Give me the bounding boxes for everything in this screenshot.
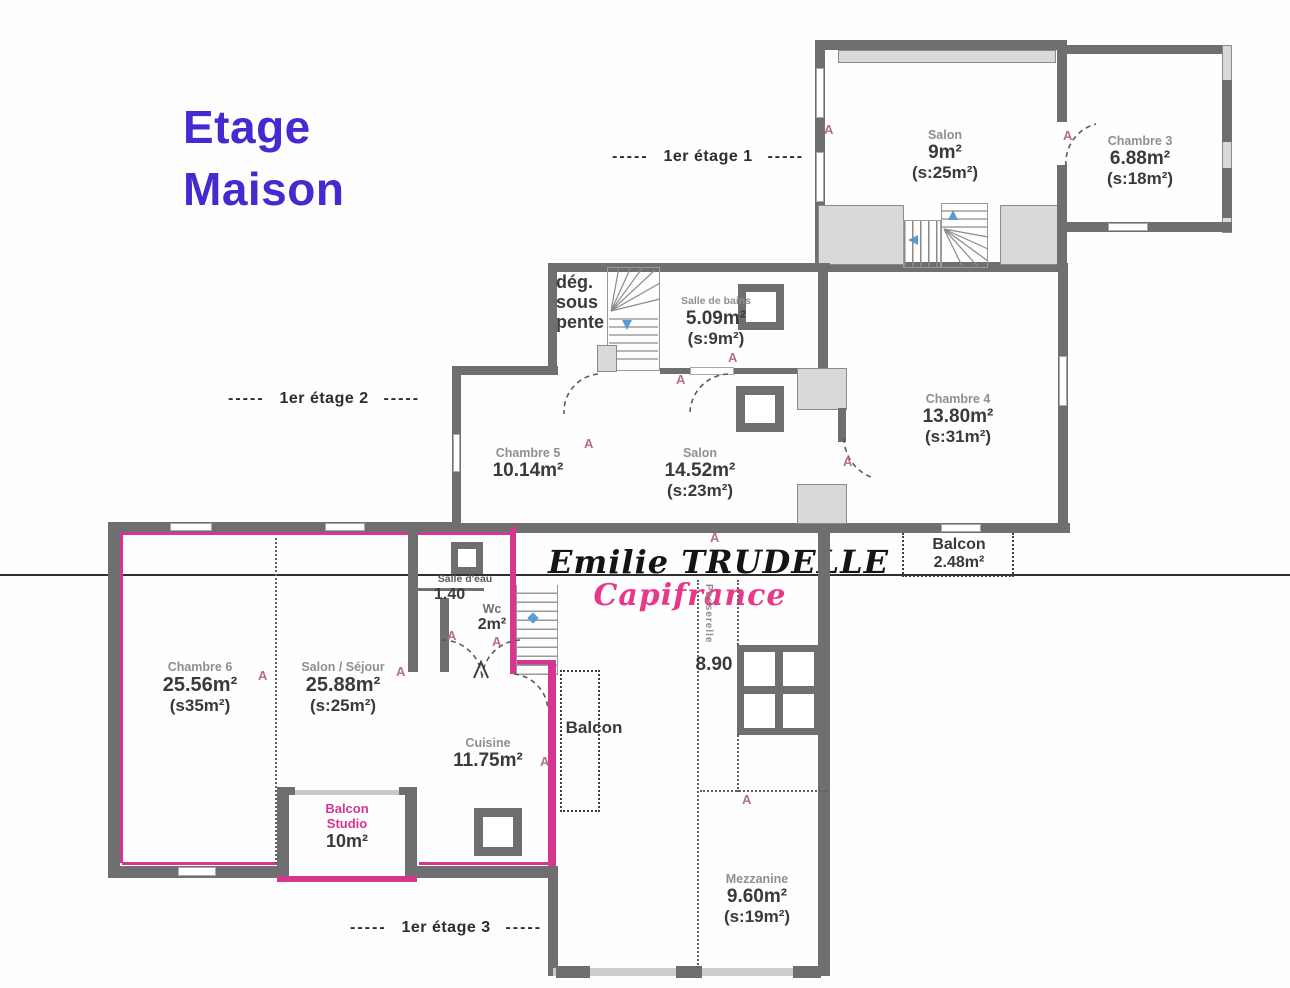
wall bbox=[417, 866, 558, 878]
room-label-salon-sejour: Salon / Séjour 25.88m² (s:25m²) bbox=[283, 660, 403, 715]
wall-light bbox=[818, 205, 904, 265]
room-area: 25.88m² bbox=[283, 674, 403, 696]
wall bbox=[548, 866, 558, 976]
page-title-line1: Etage bbox=[183, 96, 344, 158]
wall-light bbox=[797, 368, 847, 410]
dashes: ----- bbox=[612, 148, 649, 165]
room-label-balcon-etage2: Balcon 2.48m² bbox=[903, 536, 1015, 572]
room-label-balcon-cuisine: Balcon bbox=[556, 718, 632, 737]
room-area: 10.14m² bbox=[468, 460, 588, 481]
door-marker: A bbox=[540, 754, 549, 769]
watermark-agent-name: Emilie TRUDELLE bbox=[548, 543, 832, 581]
dashes: ----- bbox=[767, 148, 804, 165]
wall bbox=[108, 522, 120, 878]
room-label-wc: Wc 2m² bbox=[460, 602, 524, 634]
room-label-salle-de-bains: Salle de bains 5.09m² (s:9m²) bbox=[656, 296, 776, 348]
door-marker: A bbox=[492, 634, 501, 649]
wall bbox=[452, 366, 558, 375]
floor-label-text: 1er étage 3 bbox=[401, 919, 490, 936]
room-area: 2m² bbox=[460, 616, 524, 634]
wall bbox=[277, 790, 289, 878]
window-opening bbox=[170, 523, 212, 531]
room-area: 11.75m² bbox=[428, 750, 548, 771]
page-title: Etage Maison bbox=[183, 96, 344, 220]
room-name: Studio bbox=[297, 817, 397, 832]
room-area: 9m² bbox=[885, 142, 1005, 163]
window-shutter bbox=[1222, 168, 1232, 218]
room-label-salon-etage2: Salon 14.52m² (s:23m²) bbox=[640, 446, 760, 500]
room-name: Wc bbox=[460, 602, 524, 616]
studio-wall-pink bbox=[120, 535, 123, 863]
room-name: Salon bbox=[640, 446, 760, 460]
dashes: ----- bbox=[350, 919, 387, 936]
wall bbox=[405, 790, 417, 878]
window-opening bbox=[1108, 223, 1148, 231]
room-shab: (s:18m²) bbox=[1082, 169, 1198, 188]
room-label-chambre5: Chambre 5 10.14m² bbox=[468, 446, 588, 481]
room-name: Balcon bbox=[556, 718, 632, 737]
door-marker: A bbox=[843, 454, 852, 469]
floor-plan-canvas: Etage Maison Emilie TRUDELLE Capifrance … bbox=[0, 0, 1290, 988]
wall-light bbox=[1000, 205, 1062, 265]
room-name: Chambre 3 bbox=[1082, 134, 1198, 148]
stair-direction-arrow bbox=[622, 320, 632, 330]
door-marker: A bbox=[728, 350, 737, 365]
partition-dotted-line bbox=[275, 538, 277, 864]
window-opening bbox=[178, 867, 216, 876]
door-marker: A bbox=[584, 436, 593, 451]
dashes: ----- bbox=[228, 390, 265, 407]
watermark-brand: Capifrance bbox=[568, 578, 812, 613]
room-shab: (s:23m²) bbox=[640, 481, 760, 500]
door-marker: A bbox=[447, 628, 456, 643]
wall-light bbox=[838, 50, 1056, 63]
balcon-dotted-outline bbox=[560, 670, 600, 812]
window-grid-symbol bbox=[737, 645, 821, 735]
door-swing-arc bbox=[562, 372, 600, 416]
room-label-chambre3: Chambre 3 6.88m² (s:18m²) bbox=[1082, 134, 1198, 188]
floor-label-etage1: ----- 1er étage 1 ----- bbox=[612, 148, 804, 166]
room-name: Salle de bains bbox=[656, 296, 776, 308]
door-marker: A bbox=[824, 122, 833, 137]
room-label-cuisine: Cuisine 11.75m² bbox=[428, 736, 548, 771]
room-name: pente bbox=[556, 312, 620, 332]
room-label-degagement: dég. sous pente bbox=[556, 272, 620, 332]
window-shutter bbox=[1222, 80, 1232, 142]
floor-label-etage2: ----- 1er étage 2 ----- bbox=[228, 390, 420, 408]
duct-symbol bbox=[474, 808, 522, 856]
passerelle-label: Passerelle bbox=[703, 584, 714, 644]
room-area: 1.40 bbox=[420, 586, 510, 604]
wall bbox=[1057, 165, 1067, 272]
window-opening bbox=[816, 68, 824, 118]
room-name: Chambre 5 bbox=[468, 446, 588, 460]
door-swing-arc bbox=[688, 372, 730, 414]
room-name: Salon bbox=[885, 128, 1005, 142]
partition-dotted-line bbox=[700, 790, 828, 792]
room-name: dég. bbox=[556, 272, 620, 292]
room-area: 2.48m² bbox=[903, 554, 1015, 572]
room-label-chambre6: Chambre 6 25.56m² (s35m²) bbox=[140, 660, 260, 715]
wall bbox=[1057, 45, 1067, 122]
room-label-mezzanine: Mezzanine 9.60m² (s:19m²) bbox=[697, 872, 817, 926]
duct-symbol bbox=[451, 542, 483, 574]
room-name: Chambre 4 bbox=[898, 392, 1018, 406]
room-area: 13.80m² bbox=[898, 406, 1018, 427]
dimension-value: 8.90 bbox=[690, 654, 738, 675]
wall bbox=[1060, 45, 1232, 54]
wall bbox=[399, 787, 417, 795]
room-shab: (s35m²) bbox=[140, 696, 260, 715]
studio-wall-pink bbox=[120, 532, 516, 535]
room-area: 5.09m² bbox=[656, 308, 776, 329]
door-marker: A bbox=[1063, 128, 1072, 143]
door-marker: A bbox=[258, 668, 267, 683]
wall bbox=[793, 966, 821, 978]
room-area: 10m² bbox=[297, 831, 397, 851]
studio-wall-pink bbox=[122, 862, 278, 865]
room-name: Cuisine bbox=[428, 736, 548, 750]
door-marker: A bbox=[676, 372, 685, 387]
room-area: 6.88m² bbox=[1082, 148, 1198, 169]
window-grid-bar bbox=[744, 686, 814, 694]
passerelle-length: 8.90 bbox=[690, 654, 738, 675]
wall bbox=[408, 522, 418, 672]
wall bbox=[818, 263, 828, 372]
room-name: Balcon bbox=[903, 536, 1015, 554]
wall bbox=[556, 966, 590, 978]
balcony-edge bbox=[289, 790, 405, 795]
stair-direction-arrow bbox=[948, 210, 958, 220]
door-marker: A bbox=[742, 792, 751, 807]
room-name: Salon / Séjour bbox=[283, 660, 403, 674]
floor-label-text: 1er étage 2 bbox=[279, 390, 368, 407]
room-label-balcon-studio: Balcon Studio 10m² bbox=[297, 802, 397, 851]
dashes: ----- bbox=[505, 919, 542, 936]
dashes: ----- bbox=[383, 390, 420, 407]
wall-light bbox=[797, 484, 847, 524]
room-area: 14.52m² bbox=[640, 460, 760, 481]
wall bbox=[818, 530, 830, 976]
room-label-salon-etage1: Salon 9m² (s:25m²) bbox=[885, 128, 1005, 182]
room-shab: (s:9m²) bbox=[656, 329, 776, 348]
wall bbox=[548, 263, 830, 272]
window-opening bbox=[816, 152, 824, 202]
page-title-line2: Maison bbox=[183, 158, 344, 220]
door-swing-arc bbox=[512, 672, 550, 712]
window-opening bbox=[1059, 356, 1067, 406]
window-opening bbox=[325, 523, 365, 531]
floor-label-etage3: ----- 1er étage 3 ----- bbox=[350, 919, 542, 937]
wall bbox=[815, 40, 1067, 50]
room-area: 25.56m² bbox=[140, 674, 260, 696]
room-area: 9.60m² bbox=[697, 886, 817, 907]
studio-wall-pink bbox=[419, 862, 552, 865]
floor-label-text: 1er étage 1 bbox=[663, 148, 752, 165]
room-shab: (s:25m²) bbox=[885, 163, 1005, 182]
window-opening bbox=[941, 524, 981, 532]
room-label-chambre4: Chambre 4 13.80m² (s:31m²) bbox=[898, 392, 1018, 446]
room-label-salle-deau: Salle d'eau 1.40 bbox=[420, 574, 510, 604]
wall-light bbox=[597, 345, 617, 372]
room-name: Balcon bbox=[297, 802, 397, 817]
stair-direction-arrow bbox=[908, 235, 918, 245]
room-name: Salle d'eau bbox=[420, 574, 510, 586]
studio-wall-pink bbox=[277, 876, 417, 882]
wall bbox=[277, 787, 295, 795]
room-name: sous bbox=[556, 292, 620, 312]
room-shab: (s:25m²) bbox=[283, 696, 403, 715]
room-shab: (s:19m²) bbox=[697, 907, 817, 926]
duct-symbol bbox=[736, 386, 784, 432]
window-opening bbox=[453, 434, 460, 472]
door-marker: A bbox=[396, 664, 405, 679]
door-marker: A bbox=[710, 530, 719, 545]
room-shab: (s:31m²) bbox=[898, 427, 1018, 446]
room-name: Mezzanine bbox=[697, 872, 817, 886]
room-name: Chambre 6 bbox=[140, 660, 260, 674]
